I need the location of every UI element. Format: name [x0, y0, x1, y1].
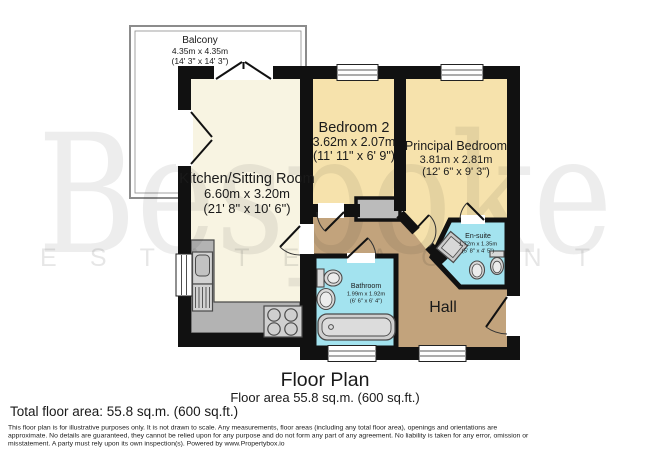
opening-balcony-left [176, 110, 193, 166]
disclaimer-line-3: misstatement. A party must rely upon its… [8, 441, 285, 448]
balcony-dimensions-metric: 4.35m x 4.35m [172, 46, 228, 56]
ensuite-label: En-suite [465, 233, 491, 240]
kitchen-dimensions-metric: 6.60m x 3.20m [204, 186, 290, 201]
window-hall-bottom [419, 346, 466, 362]
opening-kitchen-door [299, 224, 314, 254]
principal-bedroom-dimensions-imperial: (12' 6" x 9' 3") [422, 166, 490, 178]
ensuite-dimensions-metric: 1.72m x 1.35m [459, 242, 498, 248]
principal-bedroom-dimensions-metric: 3.81m x 2.81m [420, 154, 493, 166]
disclaimer-line-2: approximate. No details are guaranteed, … [8, 433, 529, 440]
wall-left [178, 66, 191, 347]
kitchen-label: Kitchen/Sitting Room [179, 171, 314, 187]
floor-plan-page: Bespoke ESTATE AGENT [0, 0, 650, 450]
balcony-label: Balcony [182, 35, 218, 46]
bedroom2-dimensions-imperial: (11' 11" x 6' 9") [313, 149, 395, 163]
ensuite-sink-inner [472, 264, 482, 277]
hall-label: Hall [429, 299, 457, 316]
bedroom2-dimensions-metric: 3.62m x 2.07m [313, 135, 396, 149]
balcony-dimensions-imperial: (14' 3" x 14' 3") [171, 56, 228, 66]
window-principal-bedroom [441, 65, 483, 81]
opening-front-door [506, 296, 522, 336]
window-kitchen-left [176, 254, 192, 296]
bathroom-dimensions-imperial: (6' 6" x 6' 4") [350, 299, 382, 305]
disclaimer-line-1: This floor plan is for illustrative purp… [8, 425, 497, 432]
ensuite-toilet-bowl-inner [493, 261, 501, 273]
bathroom-toilet-tank [317, 269, 324, 287]
bathroom-toilet-bowl-inner [328, 273, 340, 283]
window-bathroom-bottom [328, 346, 376, 362]
bathroom-label: Bathroom [351, 283, 382, 290]
floor-plan-title: Floor Plan [281, 369, 370, 391]
floor-area-subtitle: Floor area 55.8 sq.m. (600 sq.ft.) [230, 390, 419, 405]
window-bedroom2 [337, 65, 378, 81]
kitchen-dimensions-imperial: (21' 8" x 10' 6") [203, 201, 290, 216]
total-floor-area: Total floor area: 55.8 sq.m. (600 sq.ft.… [10, 404, 238, 419]
kitchen-sink-bowl [196, 255, 210, 276]
bathtub-inner [322, 318, 391, 336]
floor-plan-svg: Bespoke ESTATE AGENT [0, 0, 650, 450]
bathroom-dimensions-metric: 1.99m x 1.92m [347, 292, 386, 298]
closet [356, 198, 400, 220]
ensuite-dimensions-imperial: (5' 8" x 4' 5") [462, 249, 494, 255]
bedroom2-label: Bedroom 2 [319, 120, 390, 136]
principal-bedroom-label: Principal Bedroom [405, 139, 507, 153]
bathroom-sink-inner [320, 292, 332, 307]
